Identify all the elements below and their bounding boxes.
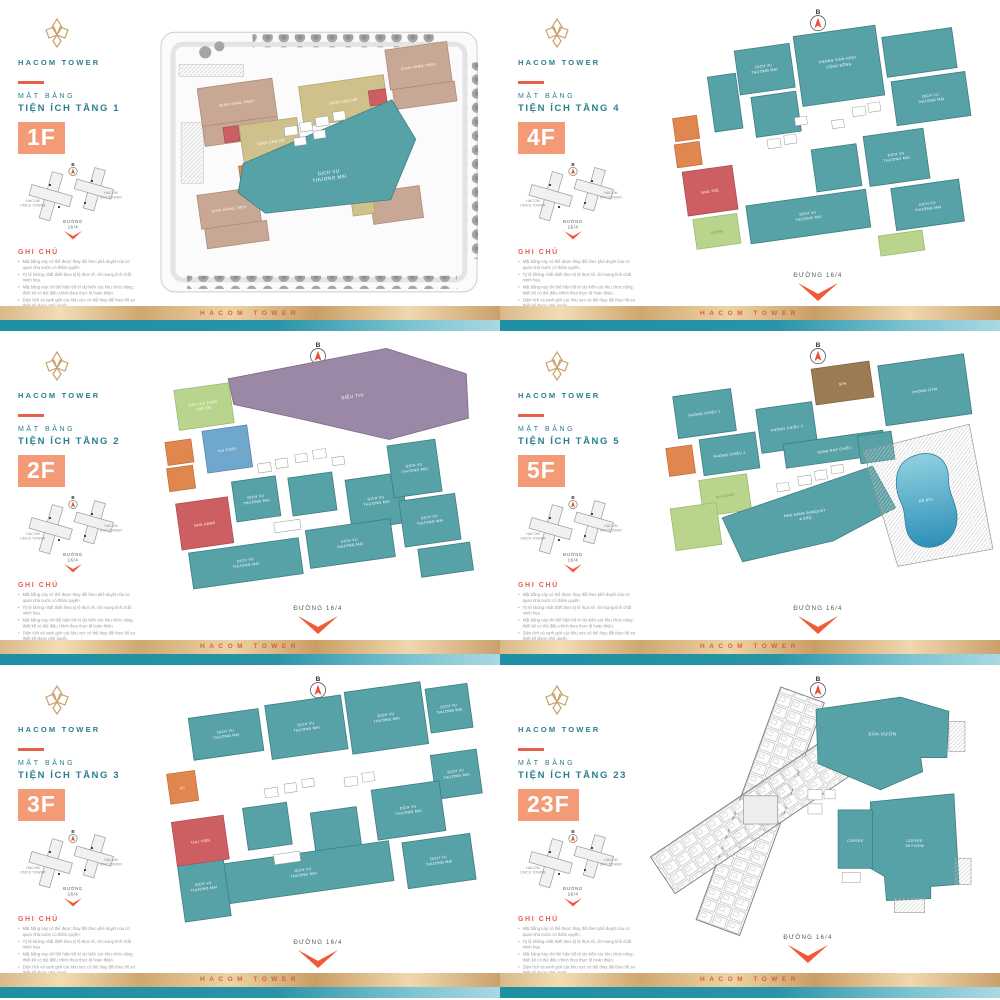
- accent-divider: [18, 81, 44, 84]
- location-minimap: B HACOM CMCS TOWER HACOM SK: [520, 160, 640, 245]
- brand-name: HACOM TOWER: [518, 58, 640, 67]
- page-subtitle: MẶT BẰNG: [18, 426, 140, 433]
- svg-text:HACOM: HACOM: [604, 524, 618, 528]
- building-zones: DỊCH VỤ THƯƠNG MẠI DỊCH VỤ THƯƠNG MẠI DỊ…: [157, 675, 494, 922]
- page-subtitle: MẶT BẰNG: [18, 760, 140, 767]
- page-subtitle: MẶT BẰNG: [518, 93, 640, 100]
- note-item: Mặt bằng này có thể được thay đổi theo p…: [18, 259, 137, 271]
- svg-text:ĐƯỜNG 16/4: ĐƯỜNG 16/4: [793, 605, 842, 612]
- north-arrow-icon: B: [69, 495, 77, 509]
- svg-text:B: B: [816, 676, 821, 683]
- svg-text:CMCS TOWER: CMCS TOWER: [20, 204, 46, 208]
- road-arrow-icon: [64, 564, 82, 573]
- page-title: TIỆN ÍCH TẦNG 23: [518, 770, 640, 781]
- svg-text:ĐƯỜNG: ĐƯỜNG: [63, 886, 82, 891]
- svg-text:B: B: [816, 9, 821, 16]
- svg-text:HACOM: HACOM: [104, 858, 118, 862]
- page-floor-4: HACOM TOWER MẶT BẰNG TIỆN ÍCH TẦNG 4 4F …: [500, 0, 1000, 333]
- footer-gold-bar: HACOM TOWER: [500, 973, 1000, 987]
- road-arrow-icon: [564, 898, 582, 907]
- svg-text:B: B: [316, 676, 321, 683]
- footer-teal-bar: [0, 320, 500, 331]
- minimap-left-label: HACOM: [26, 199, 40, 203]
- svg-text:B: B: [571, 829, 575, 834]
- svg-text:SKY TOWER: SKY TOWER: [600, 862, 622, 866]
- brand-name: HACOM TOWER: [18, 725, 140, 734]
- note-item: Tỷ lệ không nhất thiết theo tỷ lệ thực t…: [518, 938, 637, 950]
- sidebar: HACOM TOWER MẶT BẰNG TIỆN ÍCH TẦNG 23 23…: [518, 683, 640, 1000]
- svg-text:ĐƯỜNG: ĐƯỜNG: [63, 552, 82, 557]
- svg-text:ĐƯỜNG 16/4: ĐƯỜNG 16/4: [793, 272, 842, 279]
- floor-plan-4f: B: [642, 2, 994, 304]
- svg-text:ĐƯỜNG 16/4: ĐƯỜNG 16/4: [783, 933, 832, 940]
- brochure-sheet: HACOM TOWER MẶT BẰNG TIỆN ÍCH TẦNG 1 1F …: [0, 0, 1000, 1000]
- road-arrow-icon: [798, 283, 838, 301]
- svg-text:HACOM: HACOM: [104, 524, 118, 528]
- svg-text:CMCS TOWER: CMCS TOWER: [520, 204, 546, 208]
- floor-plan-3f: B: [142, 669, 494, 971]
- svg-text:HACOM: HACOM: [604, 858, 618, 862]
- svg-text:ĐƯỜNG: ĐƯỜNG: [563, 886, 582, 891]
- svg-text:SKYVIEW: SKYVIEW: [905, 844, 924, 848]
- svg-text:B: B: [71, 495, 75, 500]
- note-item: Mặt bằng này chỉ thể hiện bố trí dự kiến…: [18, 951, 137, 963]
- footer-strip: HACOM TOWER: [500, 640, 1000, 665]
- svg-text:ĐƯỜNG 16/4: ĐƯỜNG 16/4: [293, 605, 342, 612]
- floor-badge: 4F: [518, 122, 565, 154]
- note-item: Mặt bằng này có thể được thay đổi theo p…: [518, 926, 637, 938]
- notes-title: GHI CHÚ: [18, 249, 140, 256]
- svg-text:ĐƯỜNG 16/4: ĐƯỜNG 16/4: [293, 938, 342, 945]
- page-subtitle: MẶT BẰNG: [518, 426, 640, 433]
- brand-name: HACOM TOWER: [18, 391, 140, 400]
- svg-text:SKY TOWER: SKY TOWER: [100, 529, 122, 533]
- floor-badge: 5F: [518, 455, 565, 487]
- location-minimap: B HACOM CMCS TOWER HACOM SK: [520, 493, 640, 578]
- brand-name: HACOM TOWER: [18, 58, 140, 67]
- north-arrow-icon: B: [569, 162, 577, 176]
- footer-brand: HACOM TOWER: [200, 310, 300, 317]
- svg-text:SKY TOWER: SKY TOWER: [600, 529, 622, 533]
- svg-text:B: B: [571, 162, 575, 167]
- note-item: Mặt bằng này chỉ thể hiện bố trí dự kiến…: [518, 284, 637, 296]
- svg-text:HACOM: HACOM: [526, 866, 540, 870]
- note-item: Mặt bằng này chỉ thể hiện bố trí dự kiến…: [18, 284, 137, 296]
- svg-text:HACOM: HACOM: [526, 532, 540, 536]
- accent-divider: [18, 748, 44, 751]
- north-arrow-icon: B: [69, 829, 77, 843]
- road-arrow-icon: [798, 616, 838, 634]
- page-floor-23: HACOM TOWER MẶT BẰNG TIỆN ÍCH TẦNG 23 23…: [500, 667, 1000, 1000]
- svg-text:B: B: [316, 342, 321, 349]
- svg-text:SKY TOWER: SKY TOWER: [100, 196, 122, 200]
- notes-title: GHI CHÚ: [18, 916, 140, 923]
- road-label: ĐƯỜNG 16/4: [783, 933, 832, 962]
- notes-title: GHI CHÚ: [518, 582, 640, 589]
- location-minimap: B HACOM CMCS TOWER HACOM SK: [20, 160, 140, 245]
- svg-text:HACOM: HACOM: [604, 191, 618, 195]
- footer-strip: HACOM TOWER: [0, 973, 500, 998]
- minimap-road-label: ĐƯỜNG: [63, 219, 82, 224]
- location-minimap: B HACOM CMCS TOWER HACOM SK: [520, 827, 640, 912]
- floor-badge: 1F: [18, 122, 65, 154]
- north-arrow-icon: B: [569, 495, 577, 509]
- svg-text:HACOM: HACOM: [26, 866, 40, 870]
- footer-teal-bar: [500, 987, 1000, 998]
- building-zones: SÂN VƯỜN COFFEE COFFEE SKYVIEW: [808, 697, 971, 912]
- note-item: Tỷ lệ không nhất thiết theo tỷ lệ thực t…: [518, 605, 637, 617]
- footer-teal-bar: [500, 320, 1000, 331]
- svg-text:B: B: [71, 829, 75, 834]
- svg-text:16/4: 16/4: [568, 891, 579, 896]
- brand-name: HACOM TOWER: [518, 725, 640, 734]
- note-item: Mặt bằng này có thể được thay đổi theo p…: [18, 592, 137, 604]
- page-title: TIỆN ÍCH TẦNG 1: [18, 103, 140, 114]
- footer-gold-bar: HACOM TOWER: [0, 306, 500, 320]
- svg-text:B: B: [571, 495, 575, 500]
- footer-gold-bar: HACOM TOWER: [500, 640, 1000, 654]
- notes-title: GHI CHÚ: [18, 582, 140, 589]
- page-subtitle: MẶT BẰNG: [518, 760, 640, 767]
- road-label: ĐƯỜNG 16/4: [793, 605, 842, 634]
- note-item: Tỷ lệ không nhất thiết theo tỷ lệ thực t…: [18, 938, 137, 950]
- road-label: ĐƯỜNG 16/4: [293, 938, 342, 967]
- footer-teal-bar: [500, 654, 1000, 665]
- road-arrow-icon: [298, 950, 338, 968]
- svg-text:COFFEE: COFFEE: [847, 839, 864, 843]
- notes-title: GHI CHÚ: [518, 249, 640, 256]
- note-item: Mặt bằng này chỉ thể hiện bố trí dự kiến…: [18, 618, 137, 630]
- footer-gold-bar: HACOM TOWER: [0, 640, 500, 654]
- note-item: Tỷ lệ không nhất thiết theo tỷ lệ thực t…: [518, 272, 637, 284]
- note-item: Mặt bằng này có thể được thay đổi theo p…: [18, 926, 137, 938]
- minimap-right-label: HACOM: [104, 191, 118, 195]
- svg-text:CMCS TOWER: CMCS TOWER: [520, 537, 546, 541]
- floor-badge: 3F: [18, 789, 65, 821]
- svg-text:SKY TOWER: SKY TOWER: [600, 196, 622, 200]
- road-arrow-icon: [564, 564, 582, 573]
- footer-strip: HACOM TOWER: [500, 973, 1000, 998]
- svg-text:SÂN VƯỜN: SÂN VƯỜN: [868, 730, 896, 736]
- sidebar: HACOM TOWER MẶT BẰNG TIỆN ÍCH TẦNG 5 5F …: [518, 349, 640, 666]
- sidebar: HACOM TOWER MẶT BẰNG TIỆN ÍCH TẦNG 2 2F …: [18, 349, 140, 666]
- svg-text:16/4: 16/4: [568, 225, 579, 230]
- notes-title: GHI CHÚ: [518, 916, 640, 923]
- building-zones: PHÒNG CHIẾU 1 PHÒNG CHIẾU 2 PHÒNG CHIẾU …: [654, 348, 994, 597]
- page-title: TIỆN ÍCH TẦNG 5: [518, 436, 640, 447]
- road-arrow-icon: [64, 231, 82, 240]
- floor-badge: 23F: [518, 789, 579, 821]
- road-label: ĐƯỜNG 16/4: [793, 272, 842, 301]
- footer-gold-bar: HACOM TOWER: [500, 306, 1000, 320]
- floor-badge: 2F: [18, 455, 65, 487]
- sidebar: HACOM TOWER MẶT BẰNG TIỆN ÍCH TẦNG 1 1F …: [18, 16, 140, 333]
- north-arrow-icon: B: [810, 676, 825, 698]
- floor-plan-1f: DỊCH VỤ THƯƠNG MẠI SẢNH CĂN HỘ SẢNH CĂN …: [142, 2, 494, 304]
- svg-text:CMCS TOWER: CMCS TOWER: [520, 870, 546, 874]
- sidebar: HACOM TOWER MẶT BẰNG TIỆN ÍCH TẦNG 4 4F …: [518, 16, 640, 333]
- svg-text:CMCS TOWER: CMCS TOWER: [20, 537, 46, 541]
- accent-divider: [518, 81, 544, 84]
- note-item: Mặt bằng này chỉ thể hiện bố trí dự kiến…: [518, 618, 637, 630]
- floor-plan-5f: B: [642, 335, 994, 637]
- location-minimap: B HACOM CMCS TOWER HACOM SK: [20, 493, 140, 578]
- road-arrow-icon: [64, 898, 82, 907]
- page-floor-3: HACOM TOWER MẶT BẰNG TIỆN ÍCH TẦNG 3 3F …: [0, 667, 500, 1000]
- footer-strip: HACOM TOWER: [0, 640, 500, 665]
- note-item: Mặt bằng này có thể được thay đổi theo p…: [518, 592, 637, 604]
- svg-text:CMCS TOWER: CMCS TOWER: [20, 870, 46, 874]
- note-item: Tỷ lệ không nhất thiết theo tỷ lệ thực t…: [18, 272, 137, 284]
- svg-text:16/4: 16/4: [568, 558, 579, 563]
- road-label: ĐƯỜNG 16/4: [293, 605, 342, 634]
- svg-text:SKY TOWER: SKY TOWER: [100, 862, 122, 866]
- svg-text:16/4: 16/4: [68, 558, 79, 563]
- accent-divider: [18, 414, 44, 417]
- footer-strip: HACOM TOWER: [0, 306, 500, 331]
- footer-teal-bar: [0, 987, 500, 998]
- building-zones: SIÊU THỊ KHU VUI CHƠI TRẺ EM VUI CHƠI NH…: [154, 338, 493, 610]
- brand-name: HACOM TOWER: [518, 391, 640, 400]
- floor-plan-2f: B: [142, 335, 494, 637]
- accent-divider: [518, 414, 544, 417]
- footer-gold-bar: HACOM TOWER: [0, 973, 500, 987]
- svg-text:HACOM: HACOM: [526, 199, 540, 203]
- road-arrow-icon: [564, 231, 582, 240]
- floor-plan-23f: B: [642, 669, 994, 971]
- svg-text:16/4: 16/4: [68, 225, 79, 230]
- page-title: TIỆN ÍCH TẦNG 2: [18, 436, 140, 447]
- accent-divider: [518, 748, 544, 751]
- note-item: Mặt bằng này chỉ thể hiện bố trí dự kiến…: [518, 951, 637, 963]
- north-arrow-icon: B: [569, 829, 577, 843]
- road-arrow-icon: [298, 616, 338, 634]
- sidebar: HACOM TOWER MẶT BẰNG TIỆN ÍCH TẦNG 3 3F …: [18, 683, 140, 1000]
- svg-text:B: B: [816, 342, 821, 349]
- page-subtitle: MẶT BẰNG: [18, 93, 140, 100]
- north-arrow-icon: B: [69, 162, 77, 176]
- page-floor-2: HACOM TOWER MẶT BẰNG TIỆN ÍCH TẦNG 2 2F …: [0, 333, 500, 666]
- road-arrow-icon: [788, 944, 828, 962]
- north-arrow-icon: B: [810, 9, 825, 31]
- svg-text:16/4: 16/4: [68, 891, 79, 896]
- building-zones: PHÒNG SINH HOẠT CỘNG ĐỒNG DỊCH VỤ THƯƠNG…: [662, 14, 989, 283]
- note-item: Mặt bằng này có thể được thay đổi theo p…: [518, 259, 637, 271]
- page-floor-1: HACOM TOWER MẶT BẰNG TIỆN ÍCH TẦNG 1 1F …: [0, 0, 500, 333]
- location-minimap: B HACOM CMCS TOWER HACOM SK: [20, 827, 140, 912]
- svg-text:HACOM: HACOM: [26, 532, 40, 536]
- page-title: TIỆN ÍCH TẦNG 4: [518, 103, 640, 114]
- north-arrow-icon: B: [310, 676, 325, 698]
- page-floor-5: HACOM TOWER MẶT BẰNG TIỆN ÍCH TẦNG 5 5F …: [500, 333, 1000, 666]
- svg-text:B: B: [71, 162, 75, 167]
- svg-text:ĐƯỜNG: ĐƯỜNG: [563, 552, 582, 557]
- svg-text:COFFEE: COFFEE: [906, 839, 923, 843]
- north-arrow-icon: B: [810, 342, 825, 364]
- footer-teal-bar: [0, 654, 500, 665]
- page-title: TIỆN ÍCH TẦNG 3: [18, 770, 140, 781]
- svg-text:ĐƯỜNG: ĐƯỜNG: [563, 219, 582, 224]
- footer-strip: HACOM TOWER: [500, 306, 1000, 331]
- note-item: Tỷ lệ không nhất thiết theo tỷ lệ thực t…: [18, 605, 137, 617]
